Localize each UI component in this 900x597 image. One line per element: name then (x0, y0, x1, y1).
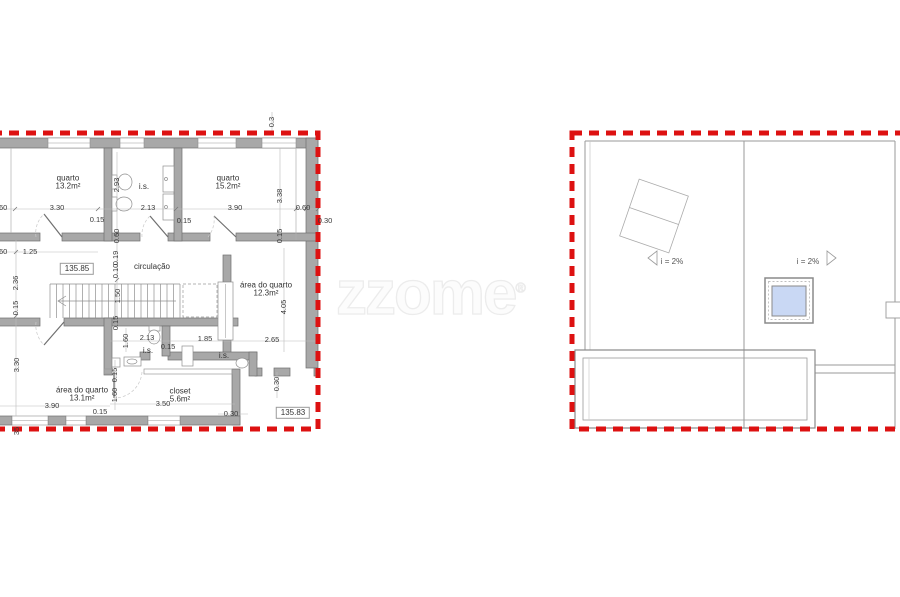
drawing-canvas: zzome® (0, 0, 900, 597)
dim-label: 0.60 (296, 204, 311, 212)
room-label-circulacao: circulação (134, 263, 170, 271)
room-label-is-top: i.s. (139, 183, 149, 191)
dim-label: 3.50 (156, 400, 171, 408)
dim-label: 0.30 (224, 410, 239, 418)
dim-label: 3.90 (228, 204, 243, 212)
room-label-area-bottom: área do quarto13.1m² (56, 387, 108, 404)
dim-label: 3.90 (45, 402, 60, 410)
dim-label: 0.30 (273, 377, 281, 392)
dim-label: 0.15 (161, 343, 176, 351)
dim-label: 3.30 (50, 204, 65, 212)
dim-label: 0.15 (111, 368, 119, 383)
skylight (765, 278, 813, 323)
dim-label: 2.93 (113, 178, 121, 193)
dim-label: 1.50 (114, 289, 122, 304)
dim-label: 2.36 (12, 276, 20, 291)
dim-label: 1.60 (111, 388, 119, 403)
dim-label: 4.05 (280, 300, 288, 315)
dim-label: 3.30 (13, 358, 21, 373)
dim-label: 1.85 (198, 335, 213, 343)
boundary-right-plan (572, 133, 900, 429)
room-label-area-right: área do quarto12.3m² (240, 282, 292, 299)
dim-label: 3.38 (276, 189, 284, 204)
dim-label: 2.13 (140, 334, 155, 342)
level-badge-upper: 135.85 (60, 263, 94, 275)
dim-label: 2.13 (141, 204, 156, 212)
dim-label: 0.60 (0, 204, 7, 212)
slope-arrow-right-icon (827, 251, 836, 265)
dim-label: 35 (13, 427, 21, 435)
dim-label: 0.3 (268, 117, 276, 127)
room-label-closet: closet5.6m² (170, 388, 191, 405)
room-label-is-mid: i.s. (143, 347, 153, 355)
slope-label-right: i = 2% (797, 258, 819, 266)
slope-arrow-left-icon (648, 251, 657, 265)
dim-label: 0.15 (177, 217, 192, 225)
dim-label: 0.15 (93, 408, 108, 416)
dim-label: 0.10 (112, 264, 120, 279)
roof-panel (620, 179, 689, 253)
dim-label: 0.15 (276, 229, 284, 244)
room-label-quarto1: quarto13.2m² (56, 175, 81, 192)
dim-label: 1.60 (122, 334, 130, 349)
room-label-is-right: i.s. (219, 352, 229, 360)
room-label-quarto2: quarto15.2m² (216, 175, 241, 192)
roof-terrace (575, 350, 815, 428)
roof-outline (585, 141, 895, 429)
floorplan-linework (0, 0, 900, 597)
dim-label: 0.15 (90, 216, 105, 224)
dim-label: 0.15 (112, 316, 120, 331)
dim-label: 0.15 (12, 301, 20, 316)
stairs (50, 284, 217, 318)
dim-label: 2.65 (265, 336, 280, 344)
dim-label: 1.25 (23, 248, 38, 256)
dim-label: 0.60 (0, 248, 7, 256)
dim-label: 0.30 (318, 217, 333, 225)
dim-label: 0.60 (113, 229, 121, 244)
level-badge-lower: 135.83 (276, 407, 310, 419)
roof-notch (886, 302, 900, 318)
slope-label-left: i = 2% (661, 258, 683, 266)
